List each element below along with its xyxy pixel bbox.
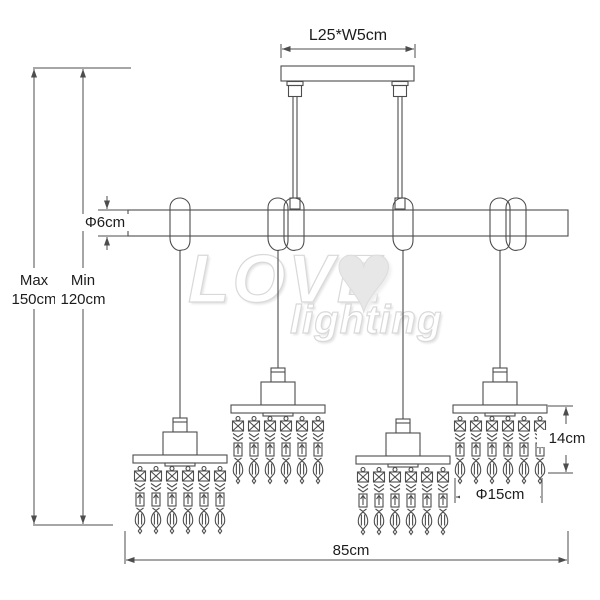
max-value: 150cm (6, 290, 62, 309)
pendant-3 (356, 419, 450, 535)
suspension-cords (290, 97, 405, 210)
max-word: Max (6, 271, 62, 290)
pendant-2 (231, 368, 325, 484)
shade-height-label: 14cm (537, 430, 597, 447)
pendant-1 (133, 418, 227, 534)
hanging-bar (128, 210, 568, 236)
shade-diameter-label: Φ15cm (460, 486, 540, 503)
pendant-cords (180, 250, 500, 420)
bar-length-label: 85cm (311, 542, 391, 559)
min-height-label: Min 120cm (55, 271, 111, 309)
pendant-lamp-dimension-diagram: LOVE lighting ♥ (0, 0, 600, 600)
ceiling-canopy (281, 66, 414, 97)
canopy-dimension-lines (281, 43, 415, 58)
min-word: Min (55, 271, 111, 290)
pendant-4 (453, 368, 547, 484)
canopy-dimension-label: L25*W5cm (280, 27, 416, 44)
bar-diameter-label: Φ6cm (65, 214, 145, 231)
min-value: 120cm (55, 290, 111, 309)
max-height-label: Max 150cm (6, 271, 62, 309)
